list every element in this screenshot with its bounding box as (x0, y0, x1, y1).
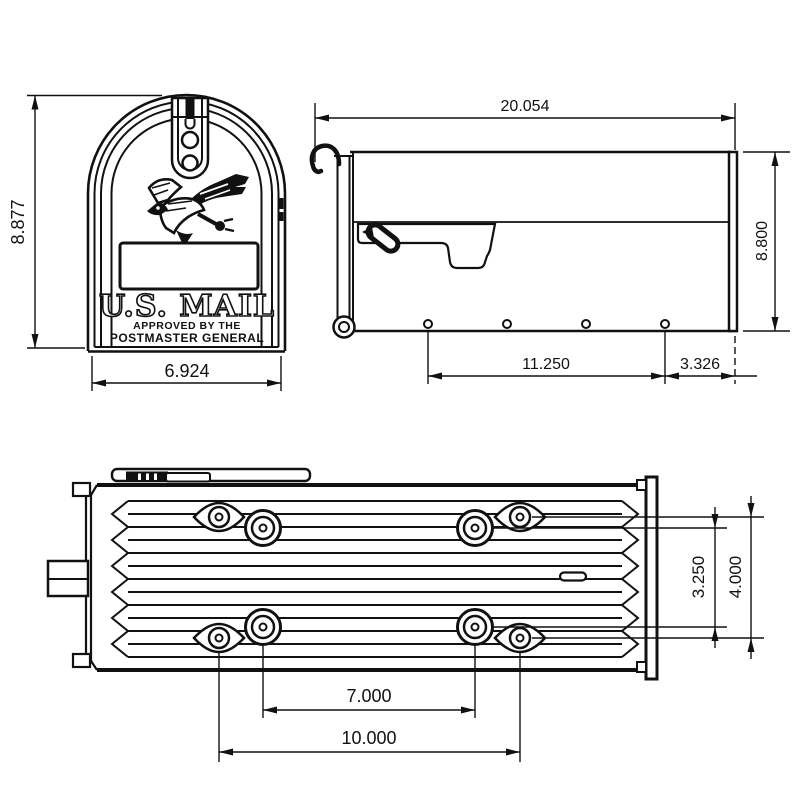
corrugation-right-chevrons (622, 501, 638, 657)
mounting-hole-small (194, 624, 244, 652)
door-edge (334, 156, 355, 338)
front-width-dimension: 6.924 (92, 356, 281, 391)
strap-hole-lower (183, 156, 198, 171)
mounting-holes (194, 503, 545, 652)
mounting-hole-large (458, 511, 493, 546)
side-bottom-dimensions: 11.250 3.326 (428, 331, 757, 384)
side-floor-holes (424, 320, 669, 328)
bottom-outer-pitch-dim-label: 10.000 (341, 728, 396, 748)
name-plate (120, 243, 258, 289)
side-rear-edge (729, 152, 737, 331)
front-height-dim-label: 8.877 (8, 199, 28, 244)
strap-hole-upper (182, 132, 198, 148)
bottom-inner-pitch-dim-label: 7.000 (346, 686, 391, 706)
door-hook-icon (312, 146, 339, 172)
drawing-sheet: U.S. MAIL APPROVED BY THE POSTMASTER GEN… (0, 0, 800, 800)
corrugation-left-chevrons (112, 501, 128, 657)
mounting-hole-large (246, 511, 281, 546)
us-mail-label: U.S. MAIL (99, 289, 275, 324)
bottom-outer-row-dim-label: 4.000 (726, 556, 745, 599)
left-clip-bottom (73, 654, 90, 667)
side-view: 20.054 8.800 11.250 3.326 (312, 98, 790, 384)
side-rear-offset-dim-label: 3.326 (680, 356, 720, 373)
rear-clip-bottom (637, 662, 646, 672)
flag-bar (112, 469, 310, 482)
approved-line2-label: POSTMASTER GENERAL (110, 331, 264, 345)
latch-strap (172, 98, 208, 178)
rear-end-cap (646, 477, 657, 679)
bottom-inner-row-dim-label: 3.250 (689, 556, 708, 599)
flag-bracket (358, 222, 495, 268)
latch-slot-bar (186, 98, 195, 119)
bottom-pitch-dimensions: 7.000 10.000 (219, 646, 520, 762)
bottom-view: 3.250 4.000 7.000 10.000 (48, 469, 764, 762)
side-height-dim-label: 8.800 (754, 221, 771, 261)
front-view: U.S. MAIL APPROVED BY THE POSTMASTER GEN… (8, 95, 285, 391)
mounting-hole-large (458, 610, 493, 645)
front-width-dim-label: 6.924 (164, 361, 209, 381)
side-hole-span-dim-label: 11.250 (522, 356, 570, 373)
door-knob (48, 561, 88, 596)
side-height-dimension: 8.800 (743, 152, 790, 331)
floor-slot (560, 573, 586, 581)
eagle-icon (147, 174, 249, 247)
rear-clip-top (637, 480, 646, 490)
side-length-dim-label: 20.054 (501, 98, 550, 115)
left-clip-top (73, 483, 90, 496)
mailbox-technical-drawing: U.S. MAIL APPROVED BY THE POSTMASTER GEN… (0, 0, 800, 800)
corrugated-panel (112, 501, 638, 657)
mounting-hole-large (246, 610, 281, 645)
